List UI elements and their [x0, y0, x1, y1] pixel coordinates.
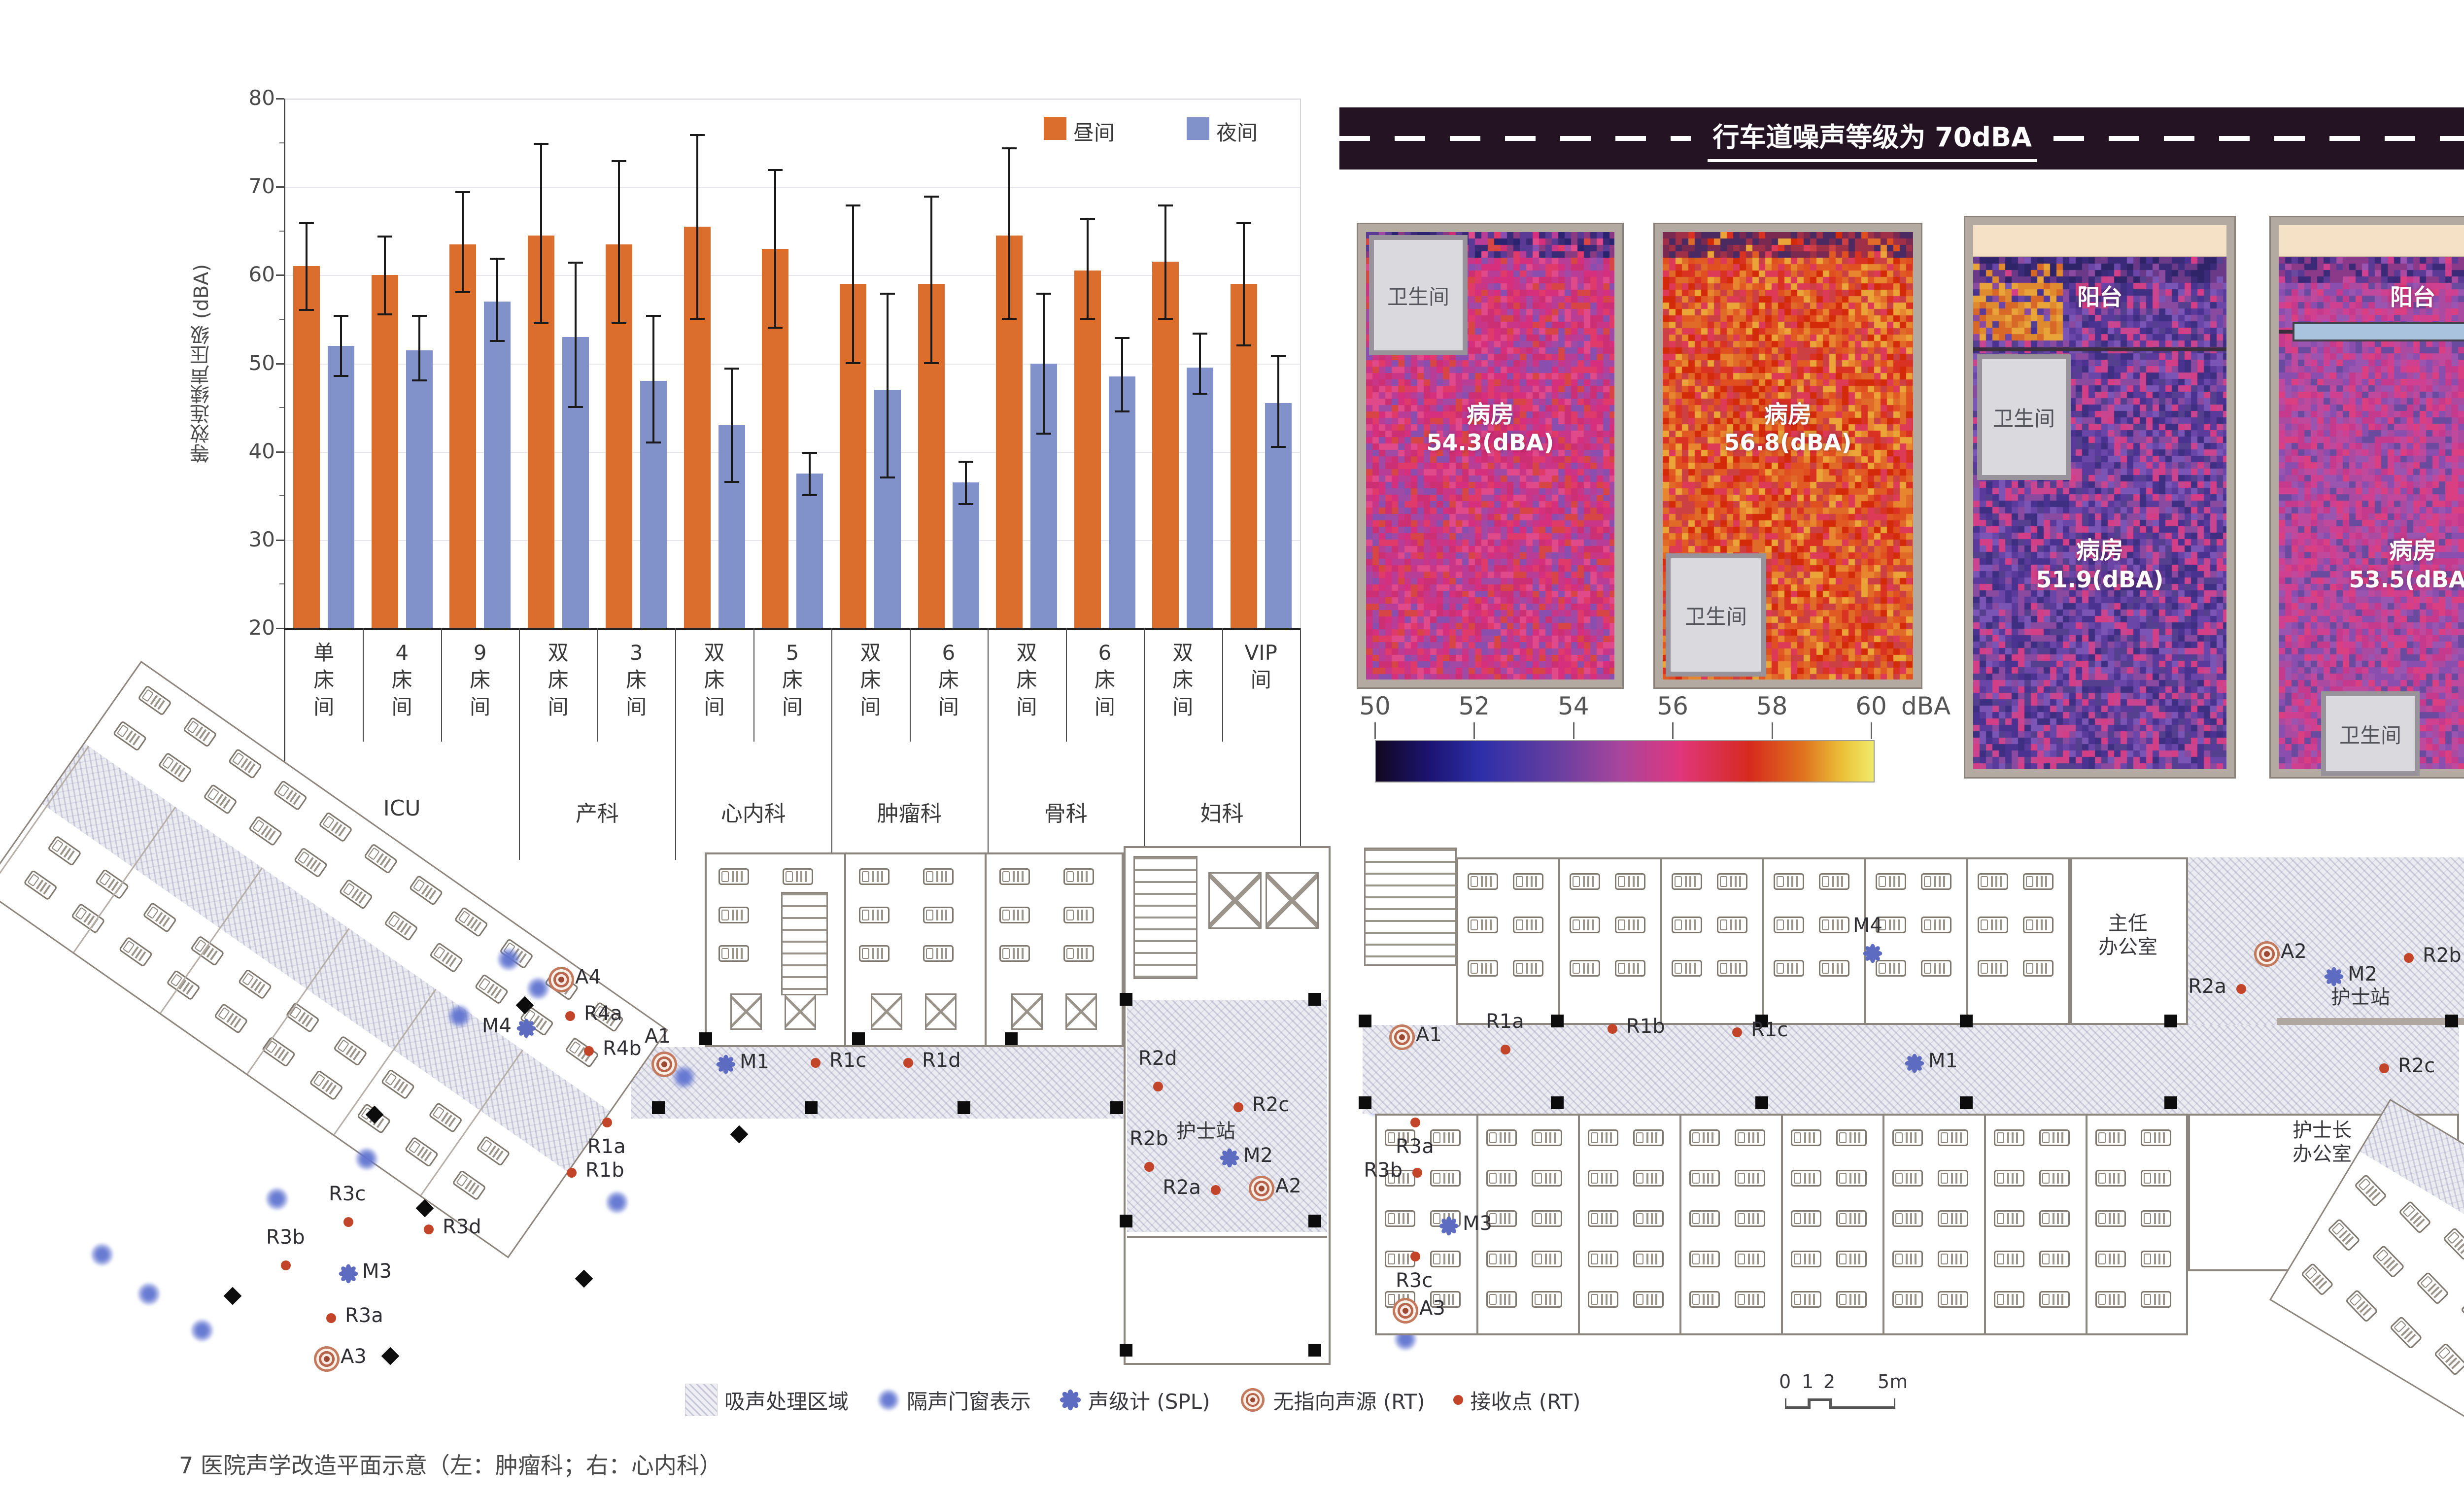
point-M2 [2324, 967, 2344, 986]
bed-icon [1063, 945, 1094, 962]
bed-icon [404, 1136, 439, 1167]
elevator [1208, 872, 1262, 929]
bed-icon [1615, 917, 1645, 933]
bed-icon [1994, 1129, 2024, 1146]
column-marker [1359, 1015, 1371, 1027]
bed-icon [719, 945, 749, 962]
column-marker [2445, 1015, 2458, 1027]
bed-icon [2141, 1210, 2171, 1227]
bed-icon [1717, 917, 1747, 933]
column-marker [1359, 1096, 1371, 1109]
legend-item-label: 吸声处理区域 [724, 1385, 849, 1415]
window-marker [605, 1190, 629, 1214]
wall [985, 854, 987, 1045]
bed-icon [2095, 1210, 2126, 1227]
bed-icon [923, 907, 954, 923]
bed-icon [1819, 917, 1849, 933]
legend-item-label: 声级计 (SPL) [1088, 1385, 1210, 1415]
wall [1984, 1116, 1986, 1333]
column-marker [1755, 1096, 1768, 1109]
bed-icon [1836, 1170, 1867, 1187]
bed-icon [1921, 873, 1951, 890]
colorbar-tick [1772, 722, 1773, 739]
point-label-R1a: R1a [1486, 1010, 1524, 1033]
column-marker [575, 1270, 593, 1288]
corridor-hatch [2188, 857, 2464, 1025]
hatch-icon [685, 1384, 718, 1416]
point-label-M2: M2 [1243, 1144, 1273, 1167]
point-label-R2a: R2a [1142, 1176, 1201, 1199]
point-A3 [311, 1344, 342, 1374]
bed-icon [719, 907, 749, 923]
point-label-A1: A1 [645, 1025, 671, 1048]
bed-icon [2039, 1251, 2070, 1267]
bed-icon [2023, 873, 2053, 890]
point-label-R2b: R2b [2423, 944, 2462, 967]
bed-icon [1588, 1291, 1618, 1308]
bed-icon [1819, 960, 1849, 977]
bed-icon [248, 816, 283, 847]
window-marker [355, 1147, 378, 1171]
point-label-R1b: R1b [585, 1159, 624, 1182]
point-R3b [281, 1260, 291, 1270]
column-marker [958, 1101, 970, 1114]
point-R2d [1153, 1082, 1163, 1091]
colorbar-tick [1473, 722, 1475, 739]
bed-icon [2095, 1129, 2126, 1146]
bed-icon [2301, 1262, 2334, 1296]
bed-icon [1892, 1170, 1923, 1187]
bed-icon [1633, 1251, 1664, 1267]
point-label-R3b: R3b [266, 1226, 305, 1249]
point-label-A1: A1 [1416, 1023, 1442, 1046]
column-marker [1551, 1015, 1564, 1027]
bed-icon [1513, 873, 1543, 890]
bed-icon [923, 868, 954, 885]
bed-icon [2327, 1218, 2361, 1252]
point-R1b [1608, 1024, 1617, 1034]
bed-icon [454, 906, 488, 937]
point-label-R3b: R3b [1343, 1159, 1403, 1182]
column-marker [730, 1125, 749, 1144]
bed-icon [1892, 1210, 1923, 1227]
column-marker [2164, 1096, 2177, 1109]
wall [1127, 1236, 1327, 1238]
toilet-pod [871, 993, 902, 1030]
toilet-pod [1011, 993, 1043, 1030]
bed-icon [2039, 1170, 2070, 1187]
stairs [1364, 848, 1457, 966]
bed-icon [1892, 1251, 1923, 1267]
bed-icon [1615, 873, 1645, 890]
bed-icon [1633, 1291, 1664, 1308]
bed-icon [783, 868, 813, 885]
bed-icon [118, 936, 153, 967]
bed-icon [1978, 873, 2008, 890]
bed-icon [261, 1036, 296, 1067]
bed-icon [1486, 1251, 1517, 1267]
bed-icon [474, 974, 509, 1005]
bed-icon [999, 945, 1030, 962]
bed-icon [1633, 1210, 1664, 1227]
bed-icon [2095, 1170, 2126, 1187]
scale-number: 2 [1823, 1371, 1835, 1393]
point-label-M3: M3 [362, 1260, 392, 1283]
bed-icon [1385, 1210, 1415, 1227]
bed-icon [1689, 1170, 1720, 1187]
legend-item-hatch: 吸声处理区域 [685, 1384, 849, 1416]
bed-icon [1994, 1291, 2024, 1308]
bed-icon [364, 843, 398, 874]
bed-icon [1570, 960, 1600, 977]
bed-icon [1570, 873, 1600, 890]
point-label-M1: M1 [1928, 1050, 1958, 1072]
office-label: 主任办公室 [2098, 912, 2157, 959]
bed-icon [2023, 960, 2053, 977]
colorbar-unit: dBA [1901, 692, 1951, 720]
bed-icon [112, 720, 147, 751]
bed-icon [1735, 1170, 1765, 1187]
bed-icon [142, 902, 177, 933]
bed-icon [1978, 917, 2008, 933]
bed-icon [2372, 1245, 2405, 1278]
point-label-M3: M3 [1463, 1212, 1492, 1235]
bed-icon [1588, 1210, 1618, 1227]
bed-icon [1430, 1170, 1461, 1187]
point-label-R1a: R1a [587, 1135, 626, 1158]
bed-icon [1532, 1291, 1562, 1308]
point-R4a [565, 1011, 575, 1021]
point-R3d [424, 1224, 434, 1234]
column-marker [1110, 1101, 1123, 1114]
bed-icon [1892, 1291, 1923, 1308]
legend-item-label: 无指向声源 (RT) [1273, 1385, 1425, 1415]
bed-icon [1819, 873, 1849, 890]
bed-icon [1486, 1170, 1517, 1187]
column-marker [1308, 1215, 1321, 1227]
bed-icon [1791, 1170, 1821, 1187]
point-label-R1c: R1c [829, 1049, 866, 1072]
window-marker [137, 1282, 161, 1306]
bed-icon [1513, 917, 1543, 933]
bed-icon [1588, 1129, 1618, 1146]
bed-icon [318, 812, 353, 843]
map-legend: 吸声处理区域隔声门窗表示声级计 (SPL)无指向声源 (RT)接收点 (RT) [685, 1378, 1609, 1422]
bed-icon [452, 1170, 486, 1201]
floor-plans: 护士站主任办公室护士站护士长办公室A4R4aM4R4bA1M1R1cR1dR1a… [0, 0, 2464, 1496]
bed-icon [1735, 1251, 1765, 1267]
column-marker [852, 1032, 865, 1045]
bed-icon [1735, 1291, 1765, 1308]
bed-icon [1672, 960, 1702, 977]
bed-icon [1689, 1291, 1720, 1308]
colorbar-tick-label: 54 [1544, 692, 1603, 720]
column-marker [1960, 1015, 1973, 1027]
point-R3c [343, 1217, 353, 1227]
bed-icon [1938, 1170, 1968, 1187]
office-label: 护士站 [2331, 986, 2390, 1009]
point-R1c [811, 1058, 821, 1068]
point-R2a [1211, 1185, 1221, 1195]
source-icon [1239, 1386, 1266, 1414]
column-marker [1960, 1096, 1973, 1109]
wall [1882, 1116, 1884, 1333]
toilet-pod [730, 993, 762, 1030]
point-label-A4: A4 [575, 966, 601, 988]
bed-icon [1588, 1170, 1618, 1187]
bed-icon [1689, 1251, 1720, 1267]
bed-icon [1486, 1291, 1517, 1308]
column-marker [381, 1347, 400, 1365]
bed-icon [1791, 1210, 1821, 1227]
point-label-R2a: R2a [2167, 975, 2226, 998]
point-label-R3a: R3a [345, 1304, 383, 1327]
figure-caption: 7 医院声学改造平面示意（左：肿瘤科；右：心内科） [179, 1448, 722, 1480]
wall [1558, 859, 1560, 1023]
bed-icon [2443, 1227, 2464, 1260]
bed-icon [1876, 873, 1906, 890]
point-R3c [1410, 1252, 1420, 1261]
wall [844, 854, 846, 1045]
bed-icon [719, 868, 749, 885]
bed-icon [1513, 960, 1543, 977]
point-R3a [1410, 1118, 1420, 1127]
scale-segment [1808, 1398, 1832, 1409]
room-block [705, 852, 1124, 1047]
colorbar-tick [1374, 722, 1376, 739]
point-M1 [1905, 1054, 1924, 1073]
point-M3 [1439, 1216, 1459, 1236]
bed-icon [1588, 1251, 1618, 1267]
office-label: 护士站 [1176, 1120, 1235, 1143]
column-marker [699, 1032, 712, 1045]
bed-icon [999, 868, 1030, 885]
wall [2086, 1116, 2088, 1333]
bed-icon [476, 1135, 511, 1166]
bed-icon [1978, 960, 2008, 977]
colorbar-tick-label: 58 [1743, 692, 1802, 720]
bed-icon [2390, 1316, 2423, 1349]
point-R1a [1501, 1045, 1510, 1054]
point-M3 [339, 1264, 358, 1284]
point-label-A3: A3 [341, 1345, 367, 1368]
point-label-R2b: R2b [1129, 1127, 1168, 1150]
point-label-R2c: R2c [1252, 1093, 1289, 1116]
wall [1660, 859, 1662, 1023]
bed-icon [1836, 1251, 1867, 1267]
bed-icon [1938, 1129, 1968, 1146]
bed-icon [2434, 1342, 2464, 1376]
bed-icon [1430, 1129, 1461, 1146]
point-label-M4: M4 [452, 1015, 512, 1037]
point-R1d [903, 1058, 913, 1068]
bed-icon [2039, 1129, 2070, 1146]
scale-segment [1785, 1398, 1811, 1409]
bed-icon [309, 1070, 343, 1101]
wall [1864, 859, 1866, 1023]
bed-icon [1735, 1129, 1765, 1146]
bed-icon [384, 910, 418, 941]
point-R3a [326, 1313, 336, 1323]
bed-icon [273, 780, 308, 811]
bed-icon [2141, 1291, 2171, 1308]
bed-icon [2141, 1251, 2171, 1267]
bed-icon [859, 868, 890, 885]
bed-icon [158, 752, 192, 783]
point-R1c [1732, 1027, 1742, 1037]
point-R2c [1233, 1102, 1243, 1112]
point-M4 [1863, 944, 1882, 963]
scale-number: 1 [1802, 1371, 1814, 1393]
bed-icon [1532, 1129, 1562, 1146]
point-label-R3c: R3c [329, 1183, 366, 1205]
bed-icon [1672, 873, 1702, 890]
point-label-A3: A3 [1419, 1297, 1445, 1320]
colorbar-tick [1672, 722, 1674, 739]
window-icon [877, 1389, 900, 1411]
point-A1 [649, 1049, 680, 1080]
bed-icon [1774, 960, 1804, 977]
scale-segment [1829, 1398, 1895, 1409]
bed-icon [1468, 917, 1498, 933]
wall [1679, 1116, 1681, 1333]
bed-icon [1774, 873, 1804, 890]
bed-icon [1938, 1291, 1968, 1308]
point-label-R1b: R1b [1626, 1015, 1665, 1038]
column-marker [224, 1287, 242, 1305]
column-marker [805, 1101, 818, 1114]
stairs [1133, 856, 1198, 979]
bed-icon [1486, 1129, 1517, 1146]
bed-icon [214, 1003, 248, 1034]
toilet-pod [785, 993, 816, 1030]
bed-icon [1836, 1291, 1867, 1308]
bed-icon [2416, 1271, 2450, 1305]
legend-item-meter: 声级计 (SPL) [1060, 1385, 1210, 1415]
wall [1762, 859, 1764, 1023]
bed-icon [859, 907, 890, 923]
point-label-M1: M1 [740, 1051, 769, 1073]
point-M2 [1220, 1148, 1239, 1168]
point-R2a [2236, 984, 2246, 994]
bed-icon [1633, 1170, 1664, 1187]
bed-icon [565, 1037, 599, 1068]
bed-icon [1532, 1210, 1562, 1227]
column-marker [1308, 993, 1321, 1006]
point-R1b [567, 1168, 577, 1178]
figure-page: 20304050607080等效连续声压级 (dBA)单 床 间4 床 间9 床… [0, 0, 2464, 1496]
toilet-pod [1065, 993, 1097, 1030]
point-R3b [1412, 1168, 1422, 1178]
bed-icon [2461, 1298, 2464, 1331]
bed-icon [428, 1102, 463, 1133]
colorbar-tick-label: 50 [1345, 692, 1404, 720]
point-label-R4a: R4a [584, 1002, 622, 1025]
window-marker [90, 1243, 114, 1266]
bed-icon [2141, 1129, 2171, 1146]
legend-item-label: 接收点 (RT) [1470, 1385, 1580, 1415]
stairs [781, 892, 828, 995]
bed-icon [47, 835, 82, 866]
window-marker [265, 1187, 289, 1211]
bed-icon [999, 907, 1030, 923]
bed-icon [1791, 1251, 1821, 1267]
bed-icon [859, 945, 890, 962]
bed-icon [2039, 1291, 2070, 1308]
point-R2b [1144, 1162, 1154, 1172]
bed-icon [1430, 1251, 1461, 1267]
bed-icon [137, 685, 172, 716]
bed-icon [2039, 1210, 2070, 1227]
bed-icon [2354, 1174, 2388, 1207]
point-label-M2: M2 [2348, 963, 2377, 986]
legend-item-receiver: 接收点 (RT) [1453, 1385, 1580, 1415]
point-label-A2: A2 [1275, 1175, 1301, 1197]
bed-icon [1689, 1129, 1720, 1146]
point-A2 [2252, 939, 2282, 969]
colorbar-tick [1871, 722, 1872, 739]
bed-icon [2095, 1291, 2126, 1308]
bed-icon [1689, 1210, 1720, 1227]
point-A1 [1387, 1022, 1417, 1053]
point-M1 [716, 1054, 736, 1074]
bed-icon [1994, 1170, 2024, 1187]
scale-number: 5m [1878, 1371, 1908, 1393]
meter-icon [1060, 1389, 1081, 1411]
bed-icon [1570, 917, 1600, 933]
bed-icon [183, 716, 217, 748]
window-marker [497, 948, 520, 971]
point-A2 [1246, 1173, 1277, 1204]
bed-icon [1836, 1129, 1867, 1146]
point-R1a [602, 1118, 612, 1127]
legend-item-source: 无指向声源 (RT) [1239, 1385, 1425, 1415]
bed-icon [1532, 1251, 1562, 1267]
bed-icon [238, 969, 272, 1000]
point-label-R3c: R3c [1396, 1269, 1433, 1292]
bed-icon [203, 783, 238, 815]
column-marker [1308, 1344, 1321, 1357]
bed-icon [228, 748, 262, 779]
bed-icon [1735, 1210, 1765, 1227]
point-R4b [584, 1046, 594, 1056]
bed-icon [2398, 1200, 2432, 1234]
bed-icon [1774, 917, 1804, 933]
column-marker [652, 1101, 665, 1114]
bed-icon [923, 945, 954, 962]
bed-icon [285, 1002, 320, 1033]
bed-icon [2023, 917, 2053, 933]
point-label-R1c: R1c [1751, 1019, 1788, 1041]
bed-icon [1063, 868, 1094, 885]
bed-icon [1063, 907, 1094, 923]
point-A3 [1390, 1295, 1421, 1326]
bed-icon [1938, 1251, 1968, 1267]
point-label-R4b: R4b [603, 1037, 642, 1060]
column-marker [1551, 1096, 1564, 1109]
bed-icon [1921, 917, 1951, 933]
bed-icon [1791, 1291, 1821, 1308]
bed-icon [1921, 960, 1951, 977]
bed-icon [1938, 1210, 1968, 1227]
legend-item-label: 隔声门窗表示 [907, 1385, 1031, 1415]
point-M4 [516, 1019, 536, 1038]
bed-icon [2095, 1251, 2126, 1267]
window-marker [190, 1319, 214, 1342]
bed-icon [1615, 960, 1645, 977]
point-R2c [2379, 1063, 2389, 1073]
bed-icon [380, 1069, 415, 1100]
